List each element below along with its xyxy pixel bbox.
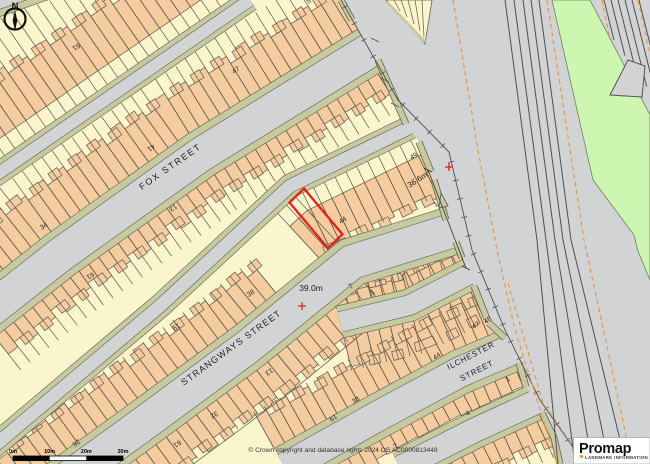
svg-text:0m: 0m (9, 449, 17, 455)
svg-text:© Crown copyright and database: © Crown copyright and database rights 20… (248, 446, 438, 454)
svg-text:20m: 20m (81, 449, 92, 455)
svg-text:30m: 30m (117, 449, 128, 455)
svg-text:LANDMARK INFORMATION: LANDMARK INFORMATION (585, 455, 648, 460)
svg-text:39.0m: 39.0m (299, 283, 323, 293)
svg-text:10m: 10m (44, 449, 55, 455)
